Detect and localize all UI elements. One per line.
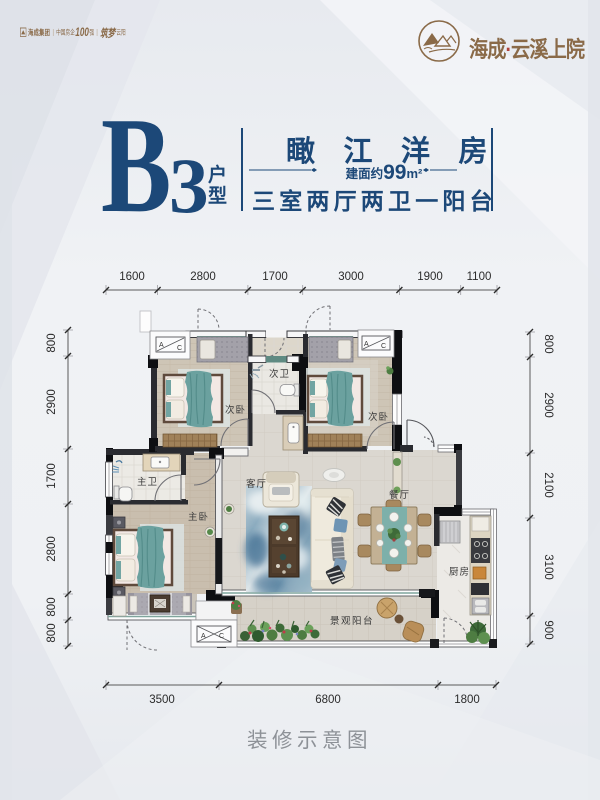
svg-text:主卫: 主卫 [137, 476, 158, 488]
svg-text:2800: 2800 [190, 271, 216, 283]
svg-text:2100: 2100 [542, 472, 554, 498]
svg-text:厨房: 厨房 [449, 566, 470, 578]
svg-text:C: C [381, 343, 386, 350]
svg-text:3500: 3500 [149, 694, 175, 706]
svg-text:A: A [364, 341, 369, 348]
svg-text:1700: 1700 [46, 463, 58, 489]
svg-text:1100: 1100 [467, 271, 492, 283]
svg-text:1700: 1700 [262, 271, 288, 283]
svg-text:客厅: 客厅 [246, 478, 267, 490]
svg-text:餐厅: 餐厅 [389, 489, 410, 501]
svg-text:800: 800 [46, 597, 58, 616]
svg-text:2800: 2800 [46, 536, 58, 562]
svg-text:2900: 2900 [46, 389, 58, 415]
svg-text:A: A [201, 633, 206, 640]
svg-text:800: 800 [46, 333, 58, 352]
svg-text:A: A [159, 342, 164, 349]
svg-text:2900: 2900 [542, 392, 554, 418]
svg-text:1600: 1600 [119, 271, 145, 283]
svg-text:3000: 3000 [338, 271, 364, 283]
svg-text:6800: 6800 [315, 694, 341, 706]
svg-text:C: C [219, 633, 224, 640]
svg-text:900: 900 [542, 620, 554, 639]
svg-text:次卫: 次卫 [269, 368, 290, 380]
svg-text:次卧: 次卧 [225, 404, 246, 416]
svg-text:3100: 3100 [542, 554, 554, 580]
svg-text:景观阳台: 景观阳台 [330, 615, 374, 627]
svg-text:次卧: 次卧 [368, 411, 389, 423]
svg-text:800: 800 [542, 334, 554, 353]
svg-text:主卧: 主卧 [188, 511, 209, 523]
svg-text:C: C [177, 345, 182, 352]
svg-text:1800: 1800 [454, 694, 480, 706]
svg-text:800: 800 [46, 623, 58, 642]
svg-text:1900: 1900 [417, 271, 443, 283]
